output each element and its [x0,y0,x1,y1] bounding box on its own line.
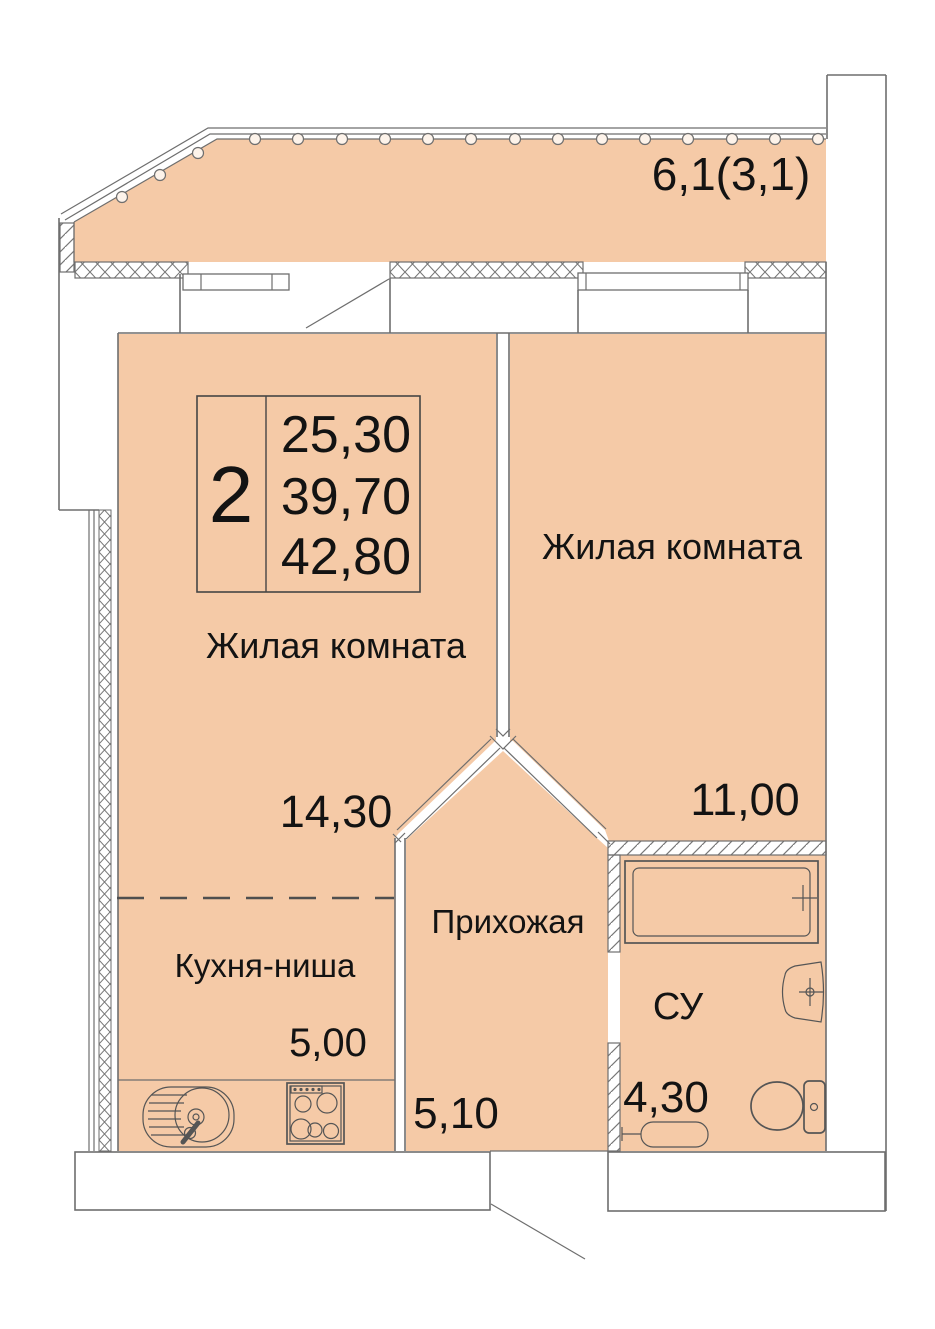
exterior-wall-left [59,218,118,1151]
balcony-area-label: 6,1(3,1) [652,148,811,200]
apartment-area-value: 39,70 [281,468,411,526]
outer-structure-right [826,75,886,1211]
window-living-2 [578,273,748,290]
hallway-area: 5,10 [413,1089,499,1138]
balcony-door-swing [306,279,389,328]
rooms-count: 2 [209,450,254,539]
kitchen-label: Кухня-ниша [175,947,356,984]
living-area-value: 25,30 [281,406,411,464]
living-room-1-area: 14,30 [280,786,393,837]
bathroom-area: 4,30 [623,1073,709,1122]
living-room-2-label: Жилая комната [542,526,803,567]
balcony-end-wall [60,223,74,272]
bottom-walls [75,1151,885,1259]
bathroom-label: СУ [653,986,704,1028]
floor-plan: 2 25,30 39,70 42,80 6,1(3,1) Жилая комна… [0,0,935,1329]
hallway-label: Прихожая [432,903,585,940]
living-room-2-floor [510,334,826,841]
living-room-2-area: 11,00 [690,774,799,825]
total-area-value: 42,80 [281,528,411,586]
living-room-1-label: Жилая комната [206,625,467,666]
kitchen-area: 5,00 [289,1021,367,1065]
exterior-walls-top [75,262,826,333]
window-living-1 [183,274,289,290]
entry-door-swing [491,1204,585,1259]
